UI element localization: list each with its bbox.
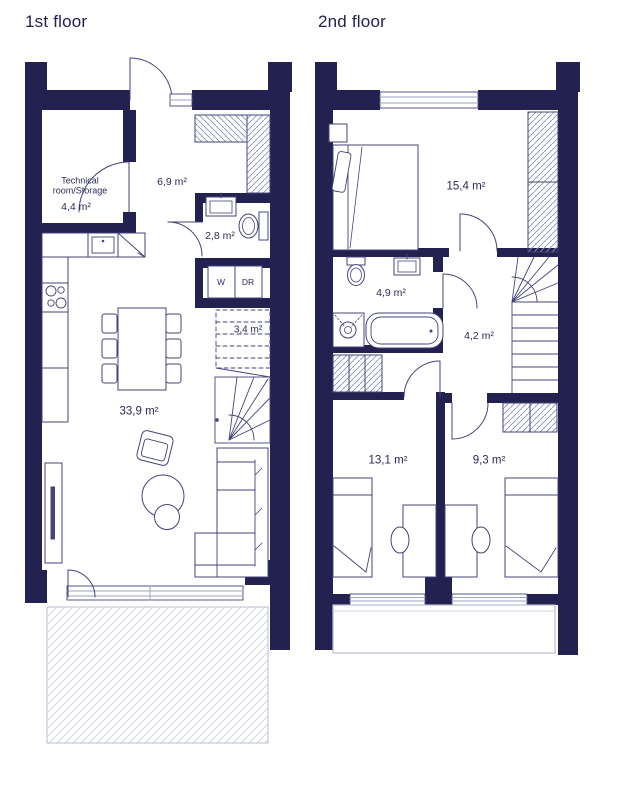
washer-label: W	[217, 278, 225, 288]
room-label-living: 33,9 m²	[120, 405, 159, 418]
single-bed	[333, 478, 372, 577]
dryer-label: DR	[242, 278, 254, 288]
sink-icon	[394, 254, 420, 275]
coffee-tables	[142, 475, 184, 530]
bathroom-door	[443, 274, 477, 308]
desk-chair	[391, 527, 409, 553]
room-label-bedroom-main: 15,4 m²	[447, 180, 486, 193]
hall-wardrobe	[333, 355, 382, 392]
room-label-technical-name: Technical room/Storage	[36, 176, 124, 197]
room-label-stairs-f1: 3,4 m²	[234, 324, 262, 336]
terrace	[47, 607, 268, 743]
entrance-door	[130, 58, 192, 106]
balcony	[333, 605, 555, 653]
dining-table	[118, 308, 166, 390]
room-label-bedroom-left: 13,1 m²	[369, 454, 408, 467]
kitchen-sink-icon	[92, 237, 114, 253]
tv-icon	[51, 487, 55, 539]
desk-chair	[472, 527, 490, 553]
room-label-bathroom-f2: 4,9 m²	[376, 287, 406, 299]
bedroom-left-door	[404, 361, 440, 397]
floorplan-canvas	[0, 0, 625, 800]
nightstand	[329, 124, 347, 142]
room-label-hallway-f2: 4,2 m²	[464, 330, 494, 342]
bathroom-floor2	[333, 254, 477, 348]
toilet-icon	[239, 212, 268, 240]
entry-wardrobe	[195, 115, 270, 193]
toilet-icon	[347, 257, 365, 286]
tv-cabinet	[45, 463, 62, 563]
stairs-floor2	[512, 257, 558, 393]
bedroom-right-furniture	[445, 403, 558, 577]
bathtub-icon	[366, 313, 443, 348]
single-bed	[505, 478, 558, 577]
master-bed	[329, 124, 418, 250]
second-floor-plan	[315, 62, 580, 655]
bedroom-left-furniture	[333, 478, 436, 577]
master-bedroom-door	[460, 214, 497, 251]
room-label-bedroom-right: 9,3 m²	[473, 454, 506, 467]
dining-set	[102, 308, 181, 390]
sofa	[195, 448, 268, 577]
first-floor-plan	[25, 58, 292, 743]
room-label-bathroom-f1: 2,8 m²	[205, 230, 235, 242]
floorplan-page: 1st floor 2nd floor Technical room/Stora…	[0, 0, 625, 800]
washing-machine-icon	[333, 313, 364, 347]
room-label-technical-area: 4,4 m²	[61, 201, 91, 213]
master-wardrobe	[528, 112, 558, 252]
room-label-hallway-f1: 6,9 m²	[157, 176, 187, 188]
floor1-title: 1st floor	[25, 12, 87, 32]
bedroom-right-door	[452, 403, 488, 439]
bedroom-window	[380, 92, 478, 108]
armchair	[136, 430, 174, 467]
floor2-title: 2nd floor	[318, 12, 386, 32]
